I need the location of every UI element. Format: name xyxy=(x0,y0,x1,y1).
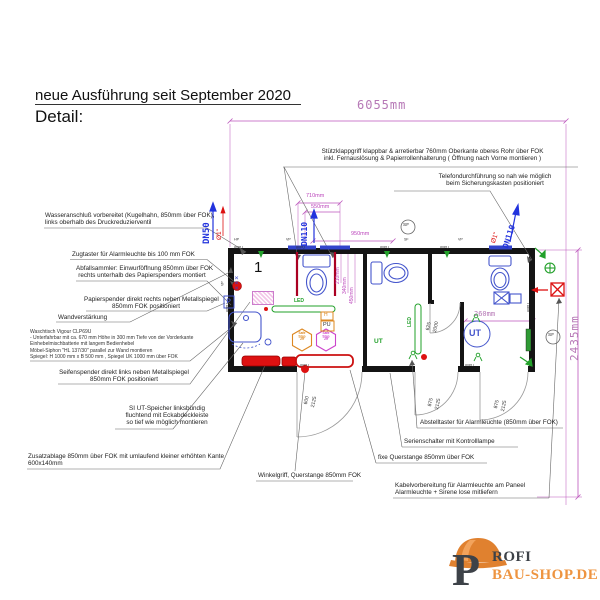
wall-label-vp: VP xyxy=(458,238,463,242)
sf-circle-label: SF xyxy=(403,223,409,228)
dimension-450: 450mm xyxy=(350,287,356,304)
page-subtitle: Detail: xyxy=(35,107,83,126)
dimension-total-depth: 2435mm xyxy=(569,315,581,361)
metal-mirror xyxy=(252,291,274,305)
wall-panel-label: 80PU xyxy=(296,246,305,250)
electric-box-pu-label: PU xyxy=(323,322,331,328)
annotation-line: 850mm FOK positioniert xyxy=(84,303,208,310)
annotation-serienschalter: Serienschalter mit Kontrolllampe xyxy=(404,438,495,445)
annotation-line: Spiegel: H 1000 mm x B 500 mm , Spiegel … xyxy=(30,354,193,360)
annotation-line: beim Sicherungskasten positioniert xyxy=(400,180,590,187)
ut-label-green: UT xyxy=(374,338,383,345)
annotation-line: Kabelvorbereitung für Alarmleuchte am Pa… xyxy=(395,482,525,489)
leader-arrowheads xyxy=(228,249,562,366)
bench xyxy=(242,356,296,366)
door-closer-bar xyxy=(526,329,531,351)
dimension-260: 260mm xyxy=(474,311,495,319)
pipe-label-dn110-a: DN110 xyxy=(301,222,310,246)
sf-circle-label: SF xyxy=(548,333,554,338)
safestep-number: 29 xyxy=(319,338,334,341)
logo-domain: BAU-SHOP.DE xyxy=(492,567,598,584)
paper-dispenser-label: P xyxy=(227,298,231,305)
dimension-210: 210mm xyxy=(336,267,342,284)
annotation-winkelgriff: Winkelgriff, Querstange 850mm FOK xyxy=(258,472,361,479)
toilet-wc3 xyxy=(489,256,521,304)
annotation-wasseranschluss: Wasseranschluß vorbereitet (Kugelhahn, 8… xyxy=(45,212,215,226)
annotation-fixe-querstange: fixe Querstange 850mm über FOK xyxy=(378,454,474,461)
annotation-stuetzklappgriff: Stützklappgriff klappbar & arretierbar 7… xyxy=(285,148,580,162)
ut-label-blue: UT xyxy=(469,328,481,338)
annotation-line: 600x140mm xyxy=(28,460,224,467)
led-label: LED xyxy=(408,317,414,327)
wall-panel-label: 80PU xyxy=(465,364,474,368)
wall-panel-label: 80PU xyxy=(300,364,309,368)
dimension-total-width: 6055mm xyxy=(357,99,406,112)
technical-drawing-page: neue Ausführung seit September 2020 Deta… xyxy=(0,0,600,600)
pipe-label-dn50: DN50 xyxy=(202,222,212,244)
annotation-line: Papierspender direkt rechts neben Metall… xyxy=(84,296,208,303)
annotation-line: Abfallsammler: Einwurföffnung 850mm über… xyxy=(76,265,208,272)
annotation-line: SI UT-Speicher linksbündig xyxy=(113,405,221,412)
exterior-alarm-light xyxy=(538,283,564,296)
annotation-line: Alarmleuchte + Sirene lose mitliefern xyxy=(395,489,525,496)
dimension-340: 340mm xyxy=(343,277,349,294)
safestep-marker-magenta: Safe Step 29 xyxy=(319,332,334,341)
annotation-abfallsammler: Abfallsammler: Einwurföffnung 850mm über… xyxy=(76,265,208,279)
safestep-number: 29 xyxy=(295,338,310,341)
floor-drain xyxy=(265,339,271,345)
electric-box-h-label: H xyxy=(324,313,328,319)
annotation-line: Wasseranschluß vorbereitet (Kugelhahn, 8… xyxy=(45,212,215,219)
pipe-diameter-label: Ø1" xyxy=(216,229,223,240)
wall-reinforcement-marks: ××× xyxy=(234,275,242,290)
annotation-kabelvorbereitung: Kabelvorbereitung für Alarmleuchte am Pa… xyxy=(395,482,525,496)
annotation-line: Stützklappgriff klappbar & arretierbar 7… xyxy=(285,148,580,155)
annotation-papierspender: Papierspender direkt rechts neben Metall… xyxy=(84,296,208,310)
wall-label-vp: VP xyxy=(286,238,291,242)
annotation-line: rechts unterhalb des Papierspenders mont… xyxy=(76,272,208,279)
annotation-line: Telefondurchführung so nah wie möglich xyxy=(400,173,590,180)
toilet-accessible xyxy=(303,255,330,295)
annotation-line: Seifenspender direkt links neben Metalls… xyxy=(58,369,190,376)
page-title: neue Ausführung seit September 2020 xyxy=(35,88,301,105)
annotation-wandverstaerkung: Wandverstärkung xyxy=(58,314,107,321)
logo-name: ROFI xyxy=(492,549,532,566)
annotation-line: 850mm FOK positioniert xyxy=(58,376,190,383)
room-number: 1 xyxy=(254,260,262,277)
annotation-line: inkl. Fernauslösung & Papierrollenhalter… xyxy=(285,155,580,162)
annotation-abstelltaster: Abstelltaster für Alarmleuchte (850mm üb… xyxy=(420,419,558,426)
wall-panel-label: 80PU xyxy=(527,303,531,312)
annotation-line: Zusatzablage 850mm über FOK mit umlaufen… xyxy=(28,453,224,460)
logo-initial: P xyxy=(452,544,480,596)
annotation-waschtisch: Waschtisch Vigour CLP69U - Unterfahrbar … xyxy=(30,329,193,360)
dimension-950: 950mm xyxy=(351,231,369,237)
annotation-line: links oberhalb des Druckreduzierventil xyxy=(45,219,215,226)
annotation-seifenspender: Seifenspender direkt links neben Metalls… xyxy=(58,369,190,383)
wall-label-vp: VP xyxy=(221,281,225,286)
annotation-line: fluchtend mit Eckabdeckleiste xyxy=(113,412,221,419)
wall-label-hp: HP xyxy=(234,238,239,242)
dimension-550: 550mm xyxy=(311,204,329,210)
wall-panel-label: 80PU xyxy=(380,246,389,250)
wall-panel-label: 80PU xyxy=(234,246,243,250)
page-title-text: neue Ausführung seit September 2020 xyxy=(35,87,301,105)
dimension-710: 710mm xyxy=(306,193,324,199)
led-label: LED xyxy=(294,299,304,305)
wall-panel-label: 80PU xyxy=(440,246,449,250)
annotation-line: so tief wie möglich montieren xyxy=(113,419,221,426)
wall-label-sf: SF xyxy=(404,238,409,242)
annotation-zugtaster: Zugtaster für Alarmleuchte bis 100 mm FO… xyxy=(72,251,195,258)
toilet-wc2 xyxy=(371,262,408,284)
exterior-lamp xyxy=(545,263,555,273)
safestep-marker-orange: Safe Step 29 xyxy=(295,332,310,341)
annotation-ut-speicher: SI UT-Speicher linksbündig fluchtend mit… xyxy=(113,405,221,426)
annotation-telefon: Telefondurchführung so nah wie möglich b… xyxy=(400,173,590,187)
annotation-zusatzablage: Zusatzablage 850mm über FOK mit umlaufen… xyxy=(28,453,224,467)
